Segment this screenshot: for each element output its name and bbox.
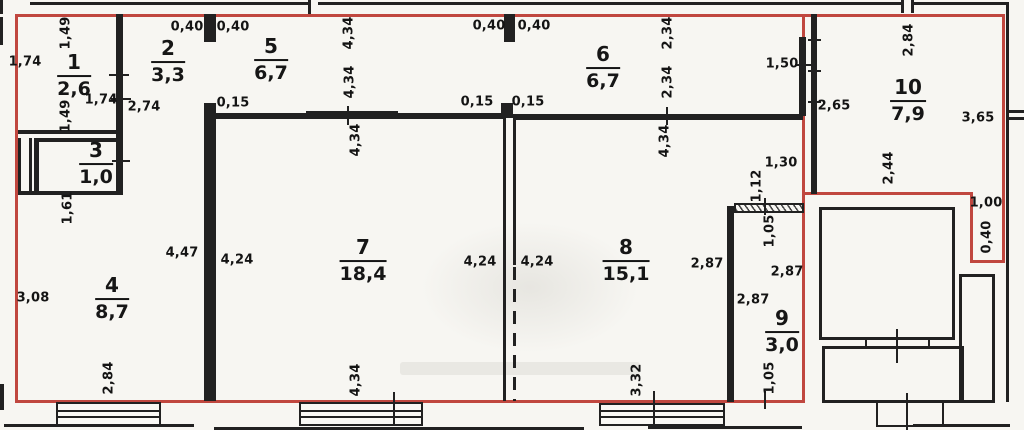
wall-exterior-left <box>0 0 3 14</box>
wall-room7-room8-dashed <box>513 267 516 401</box>
wall-stub-room5-room6 <box>504 14 515 42</box>
room-area: 1,0 <box>79 165 113 188</box>
dimension-label: 0,15 <box>461 95 494 110</box>
wall-tick <box>808 70 821 72</box>
room-label-8: 815,1 <box>596 237 657 285</box>
room-area: 6,7 <box>254 61 288 84</box>
wall-shaft-left <box>18 138 21 194</box>
wall-exterior-right <box>1006 2 1009 402</box>
room-area: 18,4 <box>340 262 387 285</box>
dimension-label: 3,08 <box>17 291 50 306</box>
dimension-label: 1,30 <box>765 156 798 171</box>
room-label-10: 107,9 <box>883 77 933 125</box>
wall-tick <box>347 106 349 125</box>
wall-room7-room8 <box>503 115 506 401</box>
dimension-label: 0,15 <box>512 95 545 110</box>
watermark-bar <box>400 362 640 375</box>
dimension-label: 2,84 <box>902 24 917 57</box>
wall-stub <box>1009 110 1024 113</box>
dimension-label: 4,24 <box>221 253 254 268</box>
window-room7 <box>299 402 423 426</box>
room-label-9: 93,0 <box>758 308 806 356</box>
room-area: 3,3 <box>151 63 185 86</box>
wall-tick <box>666 107 668 125</box>
dimension-label: 3,65 <box>962 111 995 126</box>
dimension-label: 2,84 <box>102 362 117 395</box>
wall-room4-room7 <box>204 115 216 401</box>
boundary-left <box>15 14 18 402</box>
boundary-room10-bottom <box>803 192 973 195</box>
boundary-room10-right <box>1002 14 1005 262</box>
wall-tick <box>808 39 821 41</box>
wall-stub <box>1009 117 1024 120</box>
wall-room7-room8-inner <box>513 115 516 265</box>
dimension-label: 0,40 <box>518 19 551 34</box>
wall-exterior-left <box>0 17 3 45</box>
room-label-2: 23,3 <box>144 38 192 86</box>
wall-room6-bottom <box>513 114 803 120</box>
dimension-label: 2,34 <box>661 17 676 50</box>
balcony-side <box>959 274 995 403</box>
wall-room10-left <box>811 14 817 194</box>
room-area: 7,9 <box>890 102 926 125</box>
wall-connector <box>865 338 867 348</box>
dimension-label: 4,34 <box>343 66 358 99</box>
dimension-label: 1,00 <box>970 196 1003 211</box>
window-room4 <box>56 402 161 426</box>
boundary-notch-bottom <box>970 260 1005 263</box>
room-number: 3 <box>79 140 113 165</box>
dimension-label: 1,12 <box>750 170 765 203</box>
dimension-label: 0,40 <box>217 20 250 35</box>
dimension-label: 2,87 <box>737 293 770 308</box>
dimension-label: 2,44 <box>882 152 897 185</box>
wall-tick <box>308 0 311 14</box>
room-number: 8 <box>603 237 650 262</box>
wall-room7-top <box>216 113 308 119</box>
room-number: 7 <box>340 237 387 262</box>
dimension-label: 2,87 <box>691 257 724 272</box>
wall-room9-left <box>727 206 734 402</box>
floor-plan: 12,623,331,048,756,766,7718,4815,193,010… <box>0 0 1024 430</box>
balcony-window <box>876 401 944 427</box>
wall-tick <box>393 392 395 426</box>
room-label-6: 66,7 <box>579 44 627 92</box>
wall-exterior-top <box>30 2 308 5</box>
dimension-label: 0,40 <box>980 221 995 254</box>
dimension-label: 1,49 <box>59 100 74 133</box>
wall-room7-top-lintel <box>306 111 398 119</box>
room-number: 6 <box>586 44 620 69</box>
dimension-label: 0,15 <box>217 96 250 111</box>
room-label-5: 56,7 <box>247 36 295 84</box>
room-number: 10 <box>890 77 926 102</box>
room-number: 9 <box>765 308 799 333</box>
dimension-label: 2,34 <box>661 66 676 99</box>
dimension-label: 1,74 <box>9 55 42 70</box>
dimension-label: 2,87 <box>771 265 804 280</box>
dimension-label: 1,74 <box>85 93 118 108</box>
dimension-label: 4,47 <box>166 246 199 261</box>
dimension-label: 1,05 <box>763 215 778 248</box>
wall-room6-right <box>799 37 806 116</box>
wall-tick <box>109 74 129 76</box>
wall-exterior-top <box>318 2 903 5</box>
room-number: 1 <box>57 52 91 77</box>
dimension-label: 1,05 <box>763 362 778 395</box>
wall-room7-top <box>396 113 506 119</box>
room-label-3: 31,0 <box>72 140 120 188</box>
wall-tick <box>653 391 655 425</box>
dimension-label: 4,34 <box>658 125 673 158</box>
room-number: 2 <box>151 38 185 63</box>
room-area: 3,0 <box>765 333 799 356</box>
dimension-label: 4,34 <box>349 364 364 397</box>
window-room8 <box>599 403 725 426</box>
balcony <box>819 207 955 340</box>
wall-room3-left <box>34 138 39 195</box>
room9-top-window <box>734 203 804 213</box>
room-number: 5 <box>254 36 288 61</box>
room-number: 4 <box>95 275 129 300</box>
wall-tick <box>896 329 898 363</box>
dimension-label: 1,50 <box>766 57 799 72</box>
wall-exterior-top <box>911 2 1009 5</box>
dimension-label: 1,49 <box>59 17 74 50</box>
dimension-label: 2,65 <box>818 99 851 114</box>
dimension-label: 3,32 <box>630 364 645 397</box>
wall-tick <box>906 393 908 430</box>
dimension-label: 4,34 <box>342 17 357 50</box>
room-area: 15,1 <box>603 262 650 285</box>
wall-shaft-right <box>29 138 32 194</box>
dimension-label: 0,40 <box>171 20 204 35</box>
balcony-lower <box>822 346 964 403</box>
wall-tick <box>901 0 904 13</box>
dimension-label: 4,24 <box>521 255 554 270</box>
wall-exterior-bottom <box>648 426 802 429</box>
wall-stub-room2-room5 <box>204 14 216 42</box>
room-area: 6,7 <box>586 69 620 92</box>
room-label-4: 48,7 <box>88 275 136 323</box>
dimension-label: 1,61 <box>61 192 76 225</box>
room-label-7: 718,4 <box>333 237 394 285</box>
dimension-label: 4,34 <box>349 124 364 157</box>
wall-exterior-left <box>0 384 4 410</box>
dimension-label: 2,74 <box>128 100 161 115</box>
room-area: 8,7 <box>95 300 129 323</box>
dimension-label: 4,24 <box>464 255 497 270</box>
wall-connector <box>928 338 930 348</box>
dimension-label: 0,40 <box>473 19 506 34</box>
watermark <box>385 200 675 375</box>
